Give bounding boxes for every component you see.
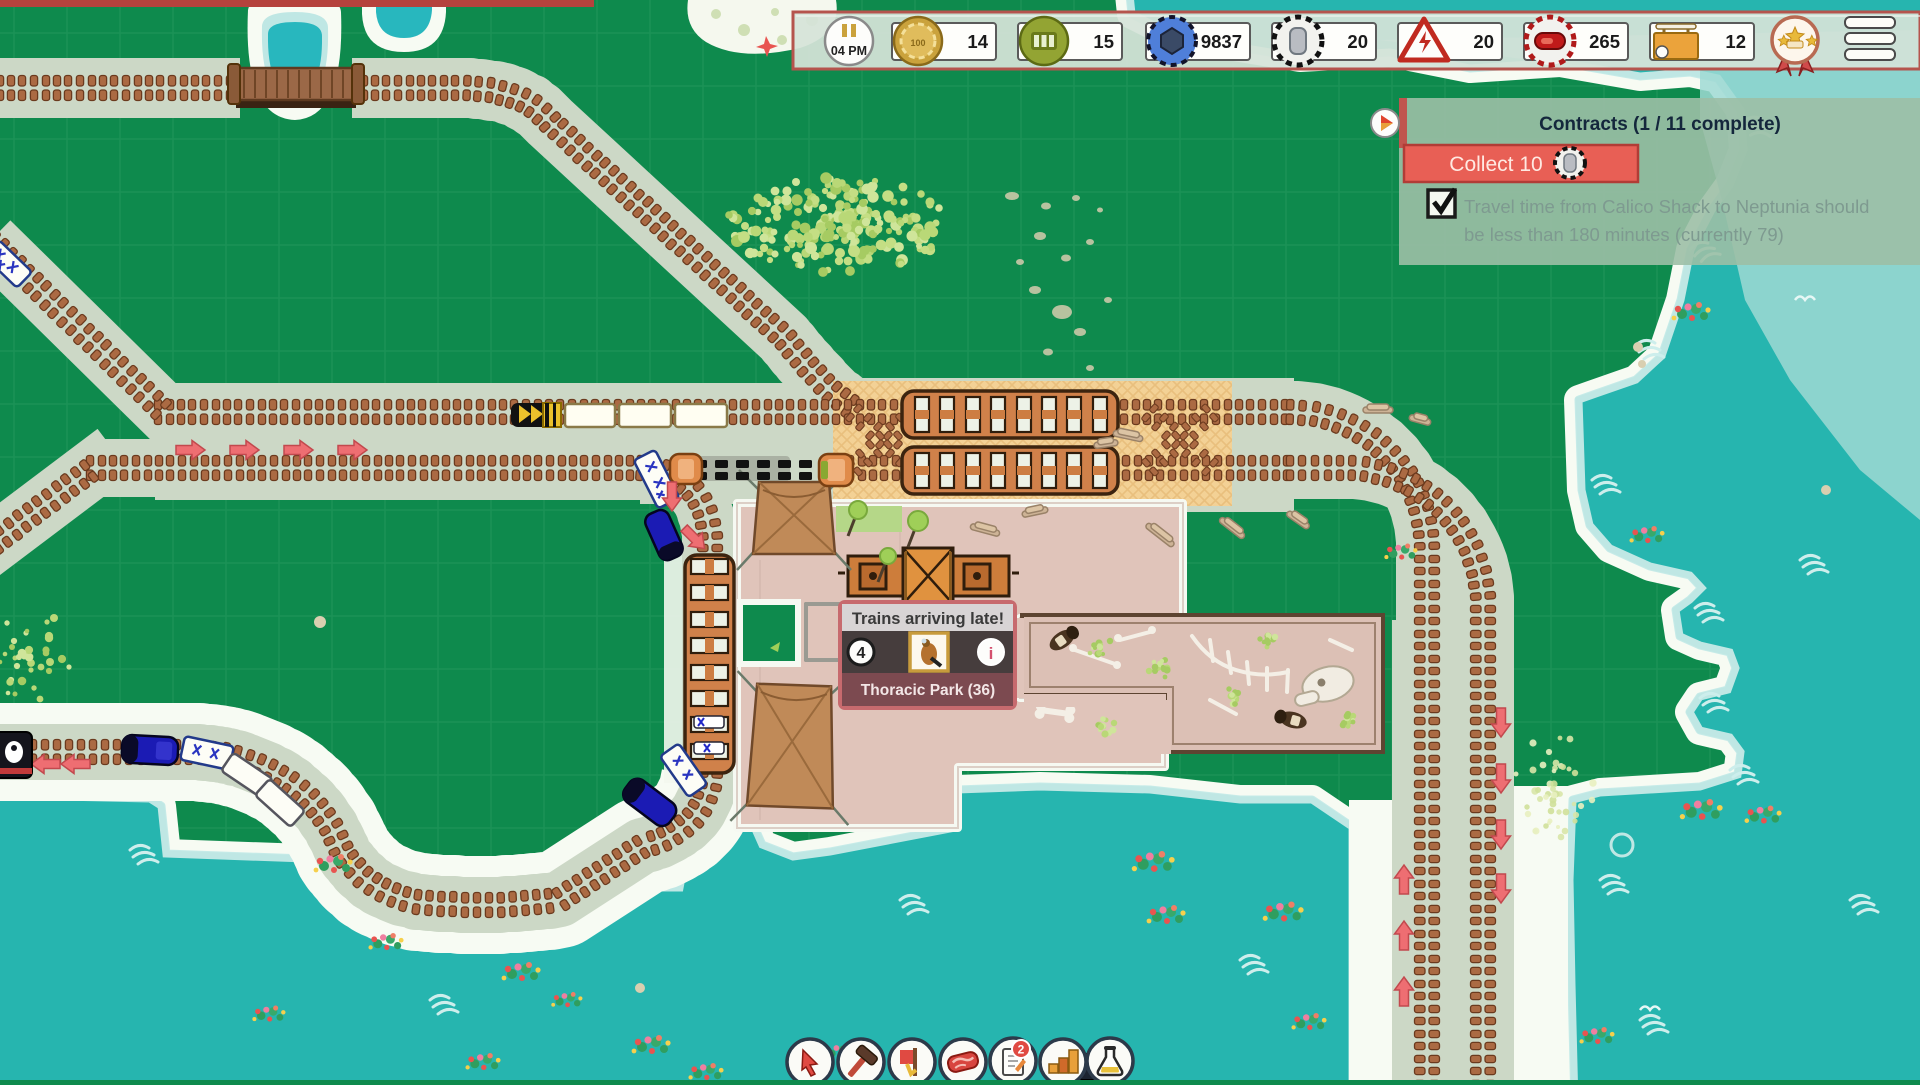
svg-text:12: 12 [1725,31,1746,52]
svg-text:4: 4 [857,645,866,662]
svg-text:14: 14 [967,31,988,52]
svg-text:Contracts (1 / 11 complete): Contracts (1 / 11 complete) [1539,114,1781,135]
svg-text:9837: 9837 [1201,31,1242,52]
svg-text:265: 265 [1589,31,1620,52]
svg-text:Trains arriving late!: Trains arriving late! [852,610,1004,628]
svg-text:15: 15 [1093,31,1114,52]
svg-text:04 PM: 04 PM [831,44,867,58]
svg-text:Travel time from Calico Shack: Travel time from Calico Shack to Neptuni… [1464,196,1869,217]
svg-text:Collect 10: Collect 10 [1449,153,1542,176]
svg-text:2: 2 [1018,1043,1025,1057]
svg-text:Thoracic Park (36): Thoracic Park (36) [861,682,995,699]
svg-text:be less than 180 minutes (curr: be less than 180 minutes (currently 79) [1464,224,1784,245]
svg-text:20: 20 [1347,31,1368,52]
svg-text:100: 100 [910,38,925,48]
svg-text:20: 20 [1473,31,1494,52]
svg-text:i: i [989,644,994,663]
